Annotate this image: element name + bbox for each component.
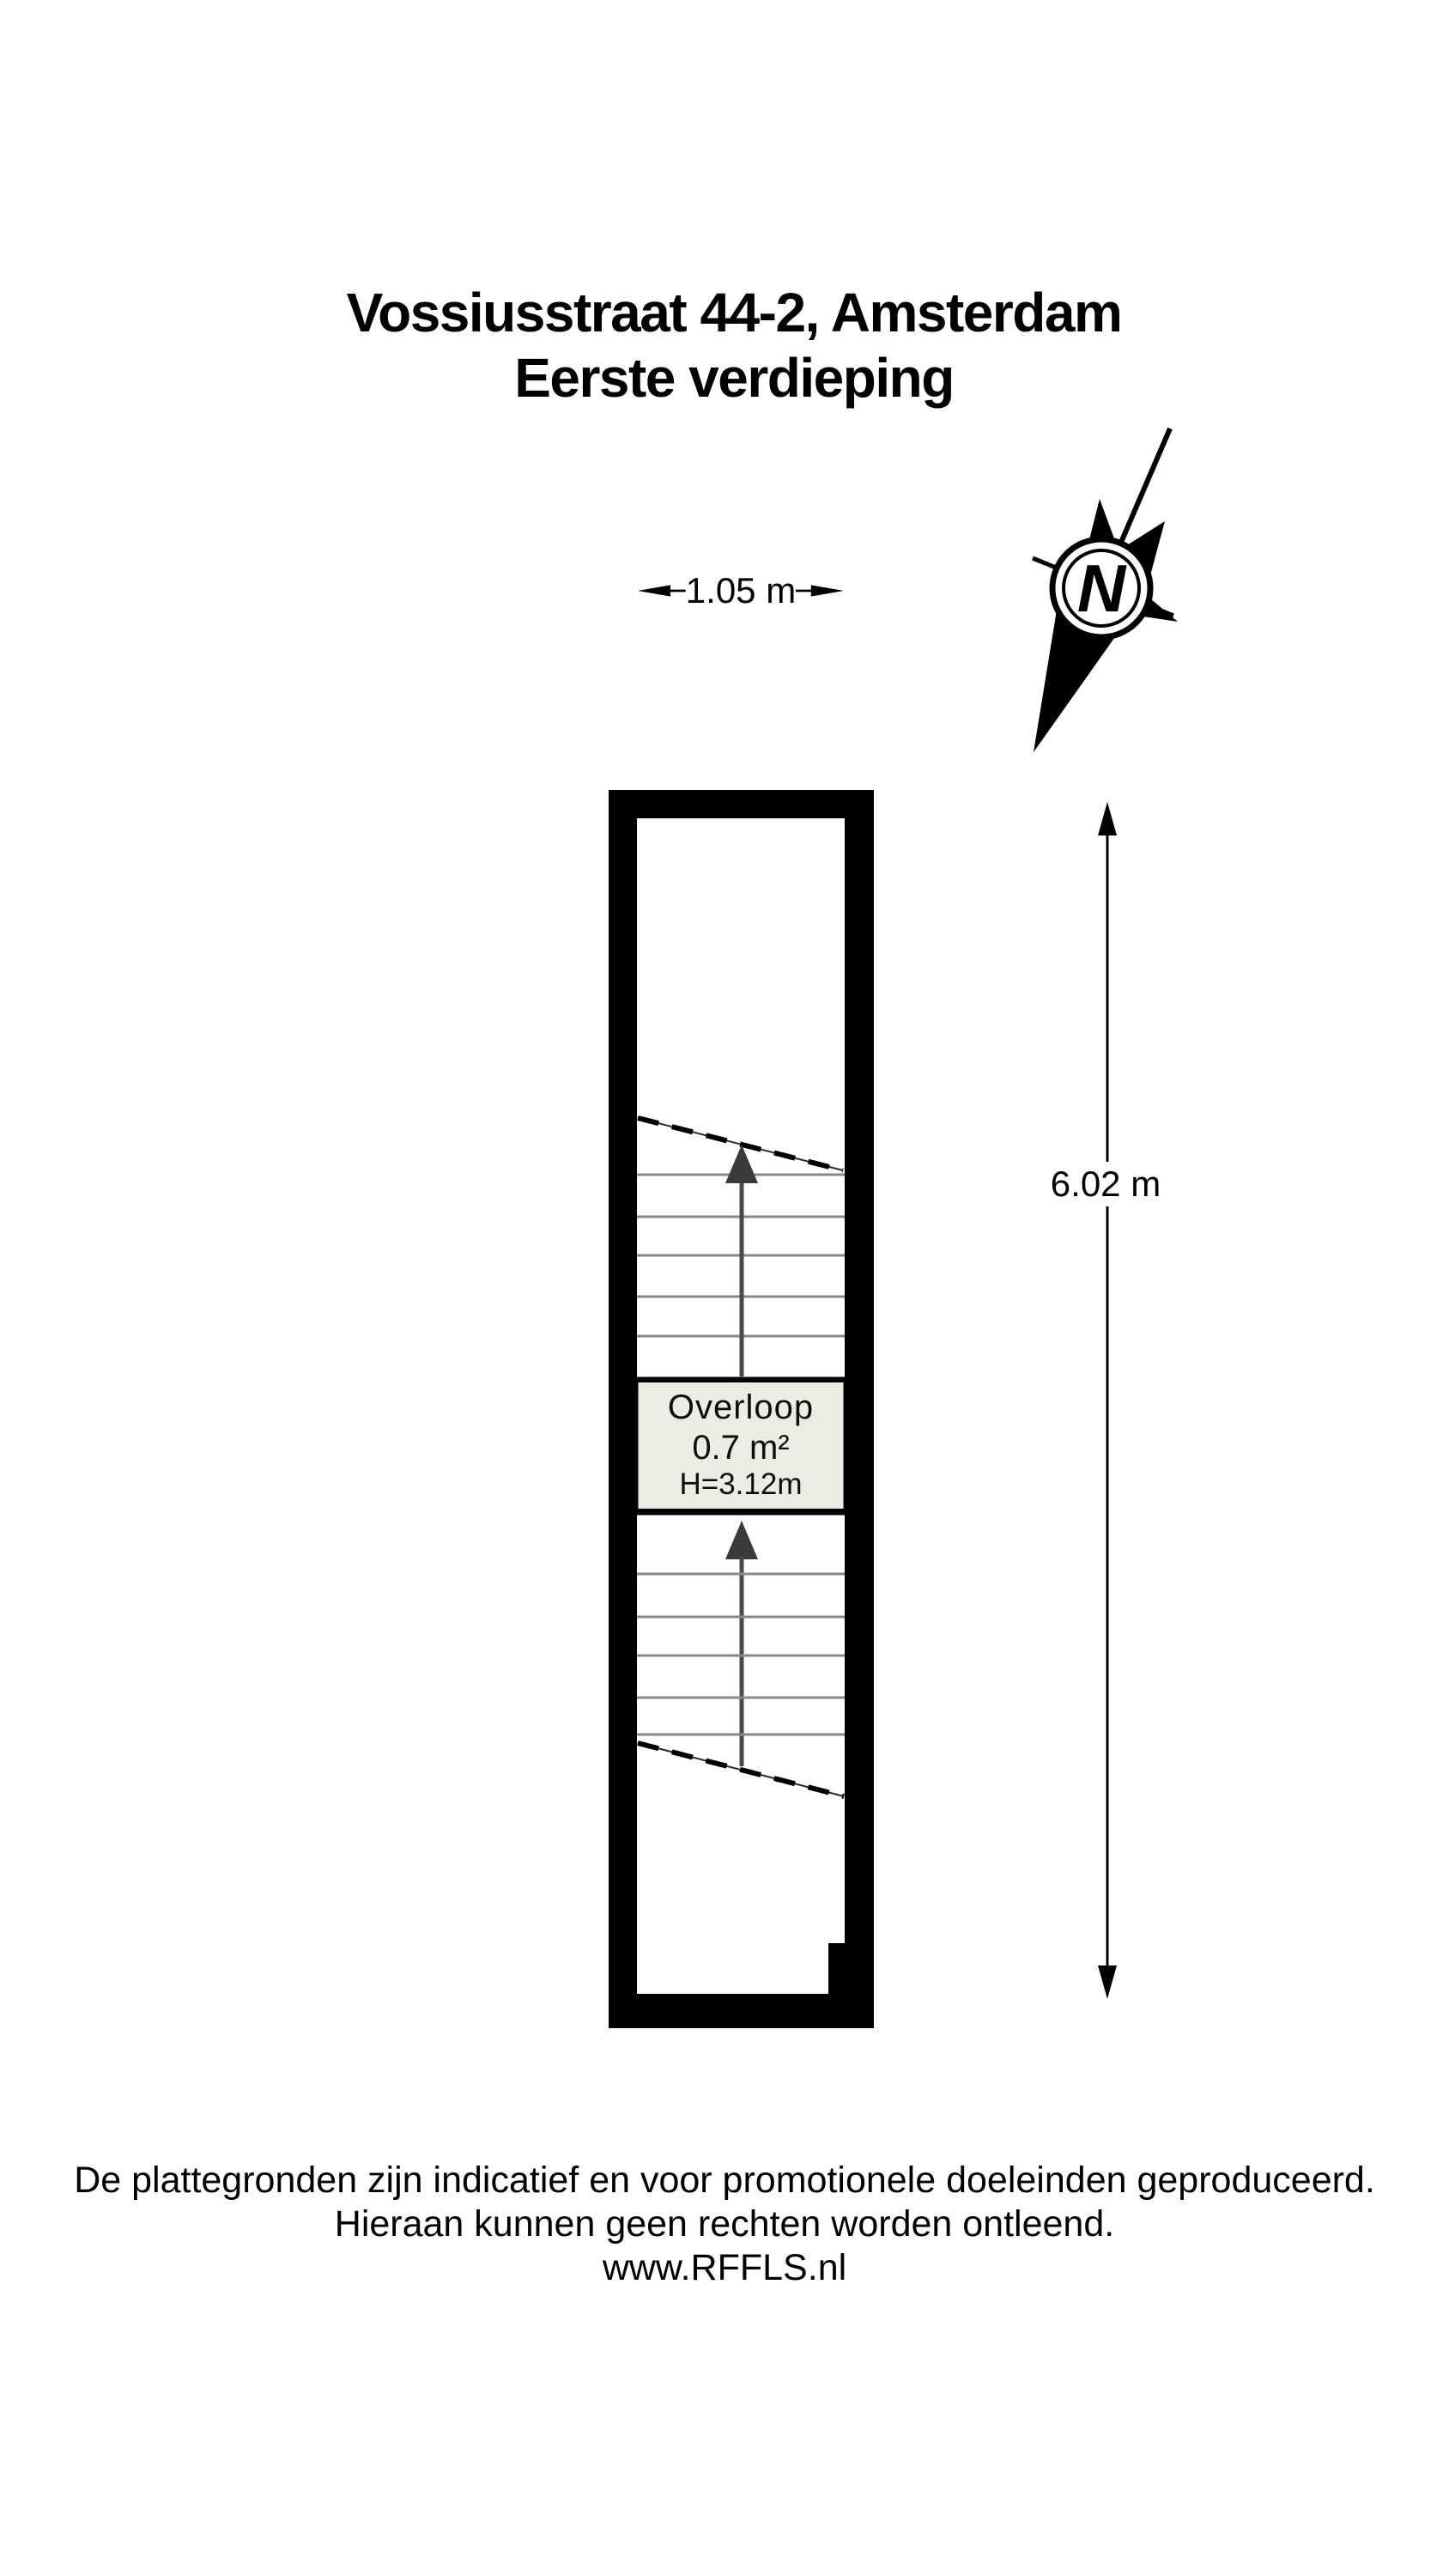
footer-disclaimer: De plattegronden zijn indicatief en voor… [0,2159,1449,2290]
width-dimension-label: 1.05 m [686,572,796,610]
floor-subtitle: Eerste verdieping [9,345,1449,410]
height-dimension-line [1092,801,1123,2000]
room-ceiling-height: H=3.12m [637,1467,845,1502]
dimension-arrow-right-icon [796,580,845,601]
dimension-arrow-up-icon [1098,802,1117,835]
width-dimension: 1.05 m [637,572,845,610]
disclaimer-line-1: De plattegronden zijn indicatief en voor… [0,2159,1449,2202]
height-dimension-label: 6.02 m [1032,1162,1179,1206]
dimension-arrow-down-icon [1098,1965,1117,1999]
floorplan-page: Vossiusstraat 44-2, Amsterdam Eerste ver… [0,0,1449,2576]
footer-website: www.RFFLS.nl [0,2246,1449,2290]
room-label: Overloop 0.7 m² H=3.12m [637,1382,845,1502]
compass-north-label: N [1077,550,1127,626]
compass-north-icon: N [1022,421,1185,764]
room-area: 0.7 m² [637,1429,845,1467]
disclaimer-line-2: Hieraan kunnen geen rechten worden ontle… [0,2202,1449,2246]
page-title: Vossiusstraat 44-2, Amsterdam [9,280,1449,345]
wall-notch [828,1943,845,1994]
room-name: Overloop [637,1387,845,1429]
dimension-arrow-left-icon [637,580,686,601]
title-block: Vossiusstraat 44-2, Amsterdam Eerste ver… [9,280,1449,410]
